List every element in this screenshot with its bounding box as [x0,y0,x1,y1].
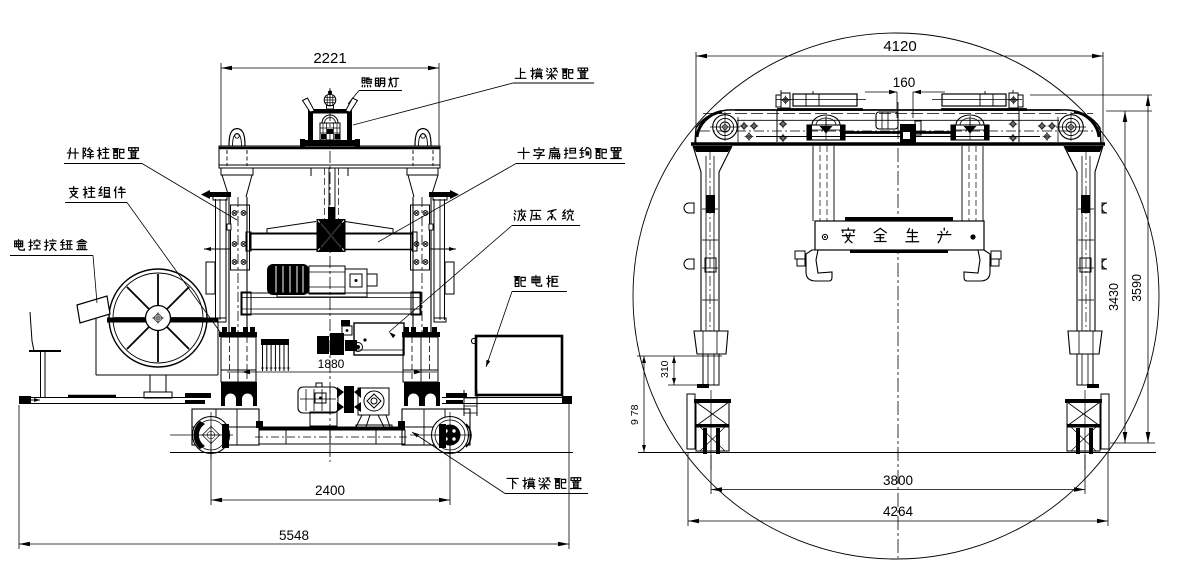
svg-text:5548: 5548 [279,528,309,543]
svg-text:3430: 3430 [1107,283,1121,311]
svg-text:3800: 3800 [883,473,913,488]
svg-text:3590: 3590 [1130,274,1144,302]
svg-text:4264: 4264 [883,504,914,519]
svg-text:1880: 1880 [318,357,345,371]
svg-text:2400: 2400 [315,483,345,498]
svg-text:2221: 2221 [313,50,346,67]
svg-text:9 78: 9 78 [629,404,641,425]
svg-text:160: 160 [893,75,916,90]
svg-text:310: 310 [659,360,671,378]
svg-text:4120: 4120 [883,38,916,55]
